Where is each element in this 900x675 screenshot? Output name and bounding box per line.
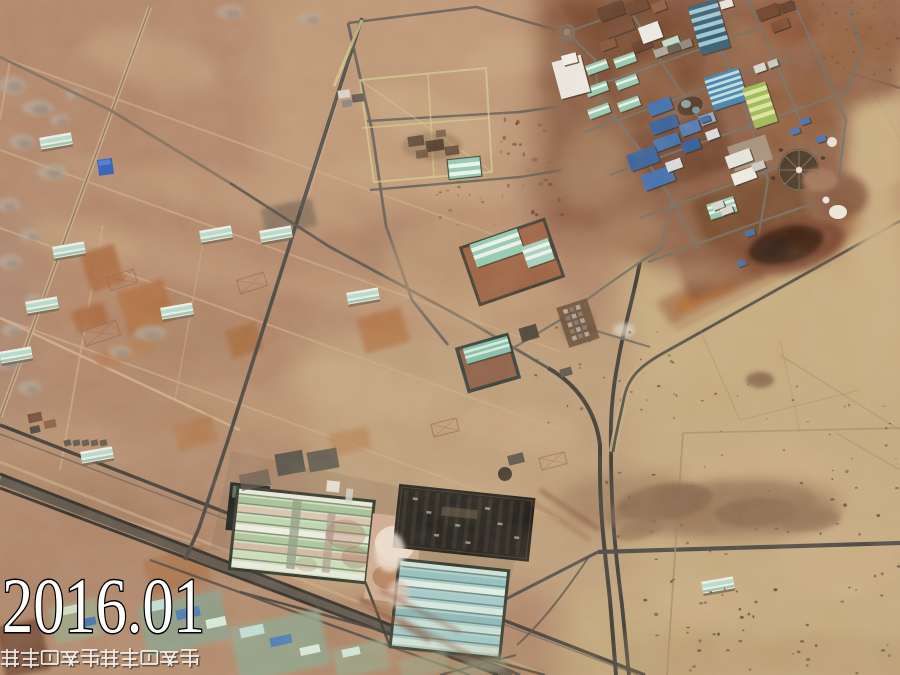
svg-text:2016.01: 2016.01 (2, 564, 205, 650)
